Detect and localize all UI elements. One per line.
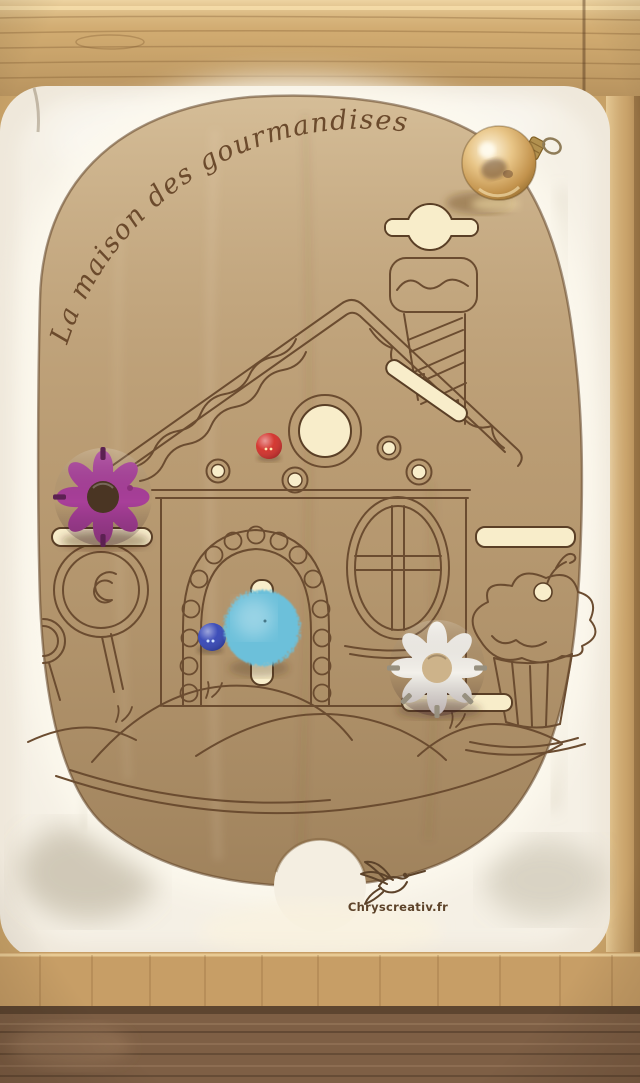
vignette — [0, 0, 640, 1083]
sensory-table-scene: La maison des gourmandises — [0, 0, 640, 1083]
